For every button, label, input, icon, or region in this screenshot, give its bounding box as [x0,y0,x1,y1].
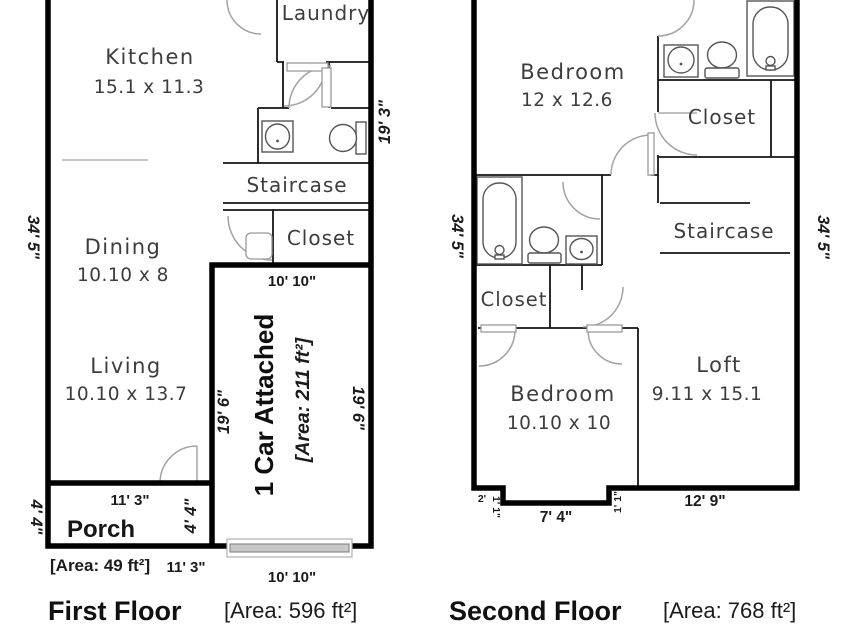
dims-loft: 9.11 x 15.1 [652,384,763,405]
toilet-icon [330,122,367,154]
door-arc-icon [588,330,622,364]
floor-plan-image: Kitchen 15.1 x 11.3 Laundry Staircase Cl… [0,0,843,632]
dim-sf-right: 34' 5" [814,215,832,259]
label-laundry: Laundry [282,1,371,25]
bathtub-icon [477,177,522,264]
dims-dining: 10.10 x 8 [77,265,169,286]
dim-sf-left: 34' 5" [448,214,466,258]
garage-door-icon [227,539,352,557]
door-arc-icon [611,135,651,175]
sink-icon [566,236,597,264]
door-leaf-icon [648,133,654,175]
door-leaf-icon [587,325,622,332]
label-garage: 1 Car Attached [249,314,279,497]
dims-bedroom-top: 12 x 12.6 [521,90,613,111]
dim-garage-bottom: 10' 10" [268,569,316,586]
dim-garage-right: 19' 6" [349,386,367,430]
floor-plan-page: Kitchen 15.1 x 11.3 Laundry Staircase Cl… [0,0,843,632]
label-living: Living [90,354,161,378]
area-garage: [Area: 211 ft²] [292,336,314,463]
door-leaf-icon [246,233,272,259]
label-loft: Loft [696,353,741,377]
dim-garage-left: 19' 6" [215,390,233,434]
first-floor-caption: First Floor [48,596,182,626]
dim-notch-width: 2' [478,493,486,505]
label-ff-staircase: Staircase [246,173,347,197]
dims-kitchen: 15.1 x 11.3 [94,77,205,98]
second-floor-caption: Second Floor [449,596,622,626]
label-closet-top: Closet [688,105,756,129]
door-arc-icon [563,182,600,219]
dim-garage-top: 10' 10" [268,273,316,290]
second-floor-plan: Bedroom 12 x 12.6 Closet Staircase Close… [448,0,832,626]
dims-bedroom-bottom: 10.10 x 10 [507,413,611,434]
dim-sf-bottom-center: 7' 4" [540,509,573,526]
dim-porch-left: 4' 4" [27,499,45,535]
toilet-icon [528,227,561,263]
second-floor-area: [Area: 768 ft²] [663,598,796,623]
dim-ff-right: 19' 3" [376,100,394,144]
sf-bedroom-walls [478,328,638,488]
label-bedroom-top: Bedroom [520,60,625,84]
dim-porch-bottom: 11' 3" [166,559,205,576]
dim-porch-right: 4' 4" [182,498,200,534]
label-closet-mid: Closet [481,288,548,311]
sink-icon [262,121,293,152]
label-bedroom-bottom: Bedroom [510,382,615,406]
dim-sf-bottom-right: 12' 9" [684,493,725,510]
sf-closet-mid-walls [550,265,582,328]
door-arc-icon [160,446,197,483]
door-arc-icon [658,0,694,36]
dim-porch-top: 11' 3" [110,492,149,509]
dim-ff-left: 34' 5" [24,215,42,259]
label-kitchen: Kitchen [105,45,194,69]
area-porch: [Area: 49 ft²] [50,556,150,575]
label-porch: Porch [67,516,135,543]
door-arc-icon [227,0,261,34]
label-ff-closet: Closet [287,226,355,250]
sink-icon [664,45,698,77]
door-leaf-icon [481,325,516,332]
first-floor-plan: Kitchen 15.1 x 11.3 Laundry Staircase Cl… [24,0,394,626]
dim-notch-depth-left: 1' 1" [490,496,502,518]
door-arc-icon [479,330,515,366]
dim-notch-depth-right: 1' 1" [612,491,624,513]
toilet-icon [705,42,739,78]
first-floor-area: [Area: 596 ft²] [224,598,357,623]
door-leaf-icon [322,68,331,107]
label-sf-staircase: Staircase [673,219,774,243]
dims-living: 10.10 x 13.7 [65,384,188,405]
door-arc-icon [583,287,623,327]
label-dining: Dining [85,235,162,259]
bathtub-icon [747,1,794,76]
